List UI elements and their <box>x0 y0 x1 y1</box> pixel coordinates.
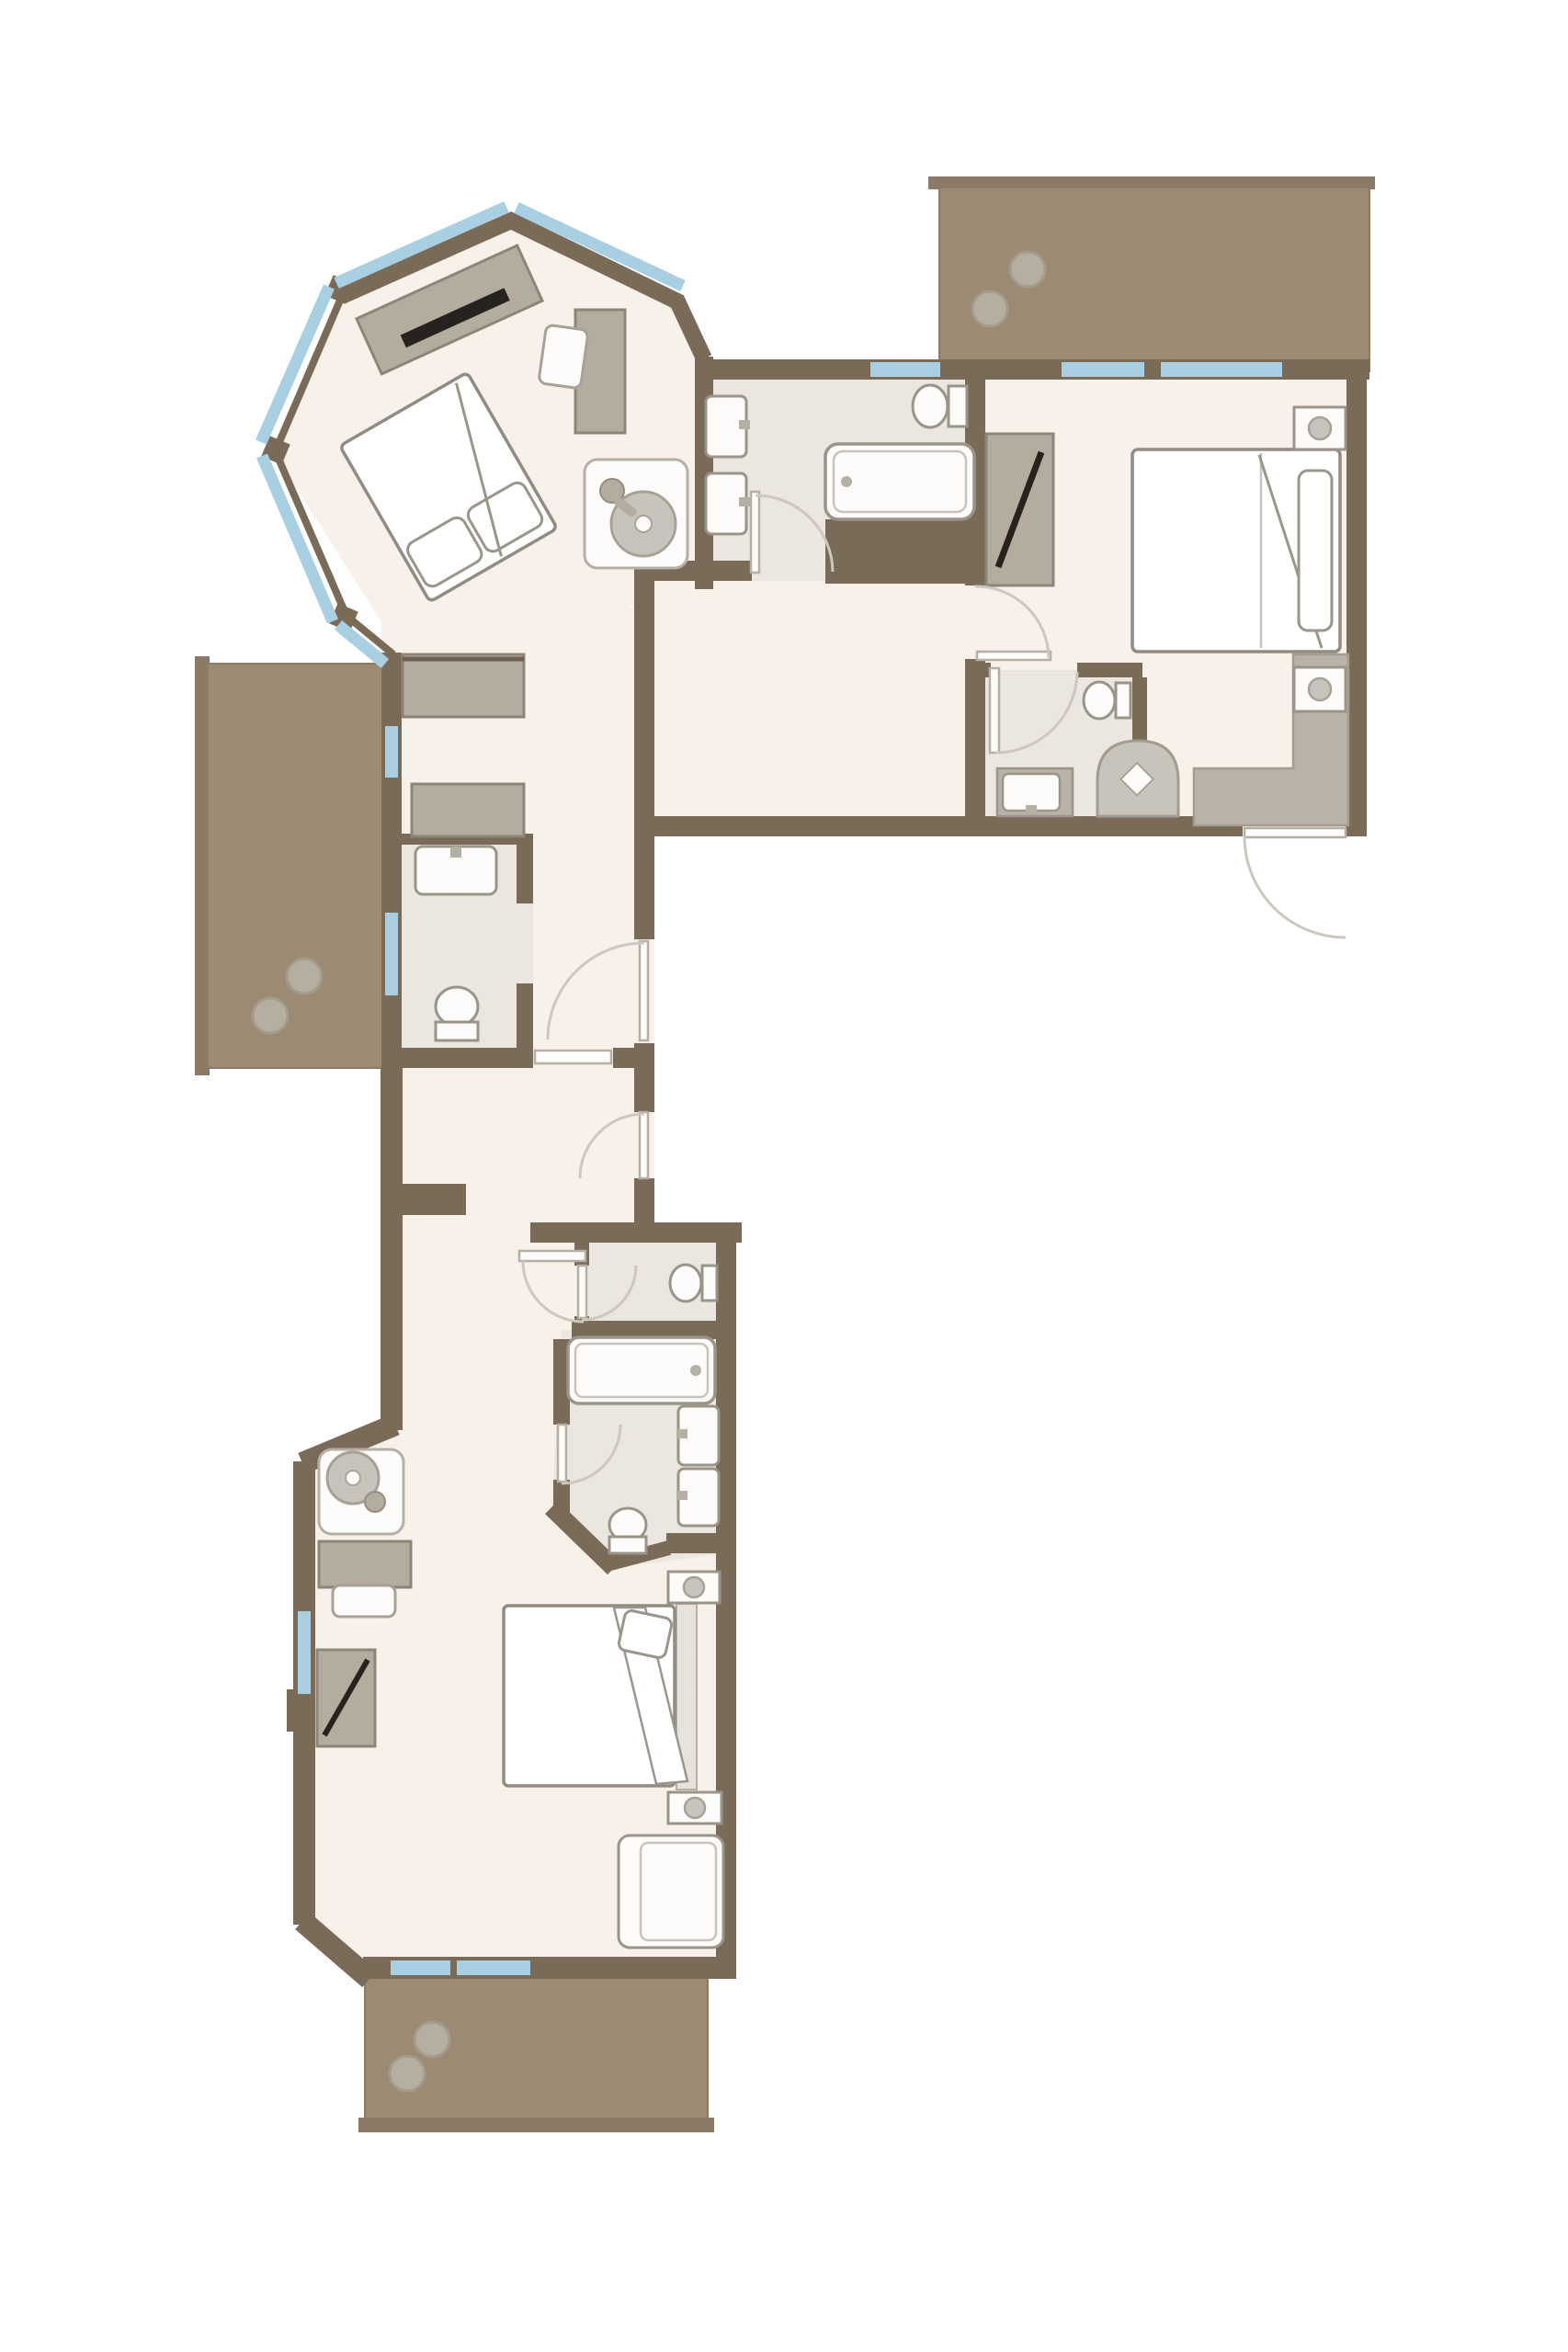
door-wc2-leaf <box>578 1266 586 1318</box>
terrace-left-chair-2 <box>253 998 288 1033</box>
terrace-top-right <box>928 176 1375 371</box>
window-bedroom2-south-2 <box>457 1960 530 1975</box>
lamp-tr-2 <box>1309 678 1331 700</box>
terrace-top-right-chair-2 <box>972 291 1007 326</box>
door-bathroom1-leaf <box>751 492 759 573</box>
terrace-left-floor <box>208 664 384 1068</box>
door-intersuite-leaf <box>535 1051 611 1063</box>
door-bedroom-tr-entry-leaf <box>1244 828 1346 837</box>
window-corridor-1 <box>385 726 398 778</box>
toilet-wc2-tank <box>702 1266 717 1301</box>
door-bedroom-tr-leaf <box>977 652 1051 660</box>
lamp-b2-1 <box>684 1577 704 1597</box>
window-bedroom-tr-1 <box>1062 362 1144 377</box>
toilet-bathroom1-bowl <box>913 385 948 427</box>
basin-bathroom1-1-faucet <box>739 420 750 429</box>
window-bedroom-tr-2 <box>1161 362 1282 377</box>
bathtub-1-faucet <box>841 476 852 487</box>
terrace-left-chair-1 <box>287 959 322 994</box>
sink-wc-tr-faucet <box>1026 805 1037 814</box>
terrace-bottom-ledge <box>358 2118 714 2132</box>
bed2-pillow <box>618 1609 673 1659</box>
hairdryer-bedroom2 <box>365 1492 385 1512</box>
terrace-top-right-floor <box>939 187 1369 371</box>
desk-bedroom2 <box>319 1541 411 1587</box>
terrace-left <box>195 656 384 1075</box>
door-wc-tr-leaf <box>990 668 999 753</box>
door-bathroom2-leaf <box>558 1425 566 1482</box>
toilet-wc-tr-tank <box>1116 683 1131 718</box>
terrace-bottom-chair-2 <box>390 2056 425 2091</box>
terrace-top-right-chair-1 <box>1010 252 1045 287</box>
terrace-bottom-chair-1 <box>415 2022 449 2057</box>
basin-wc1-faucet <box>450 846 461 858</box>
wall-bathroom1-block <box>825 519 976 584</box>
basin-bathroom2-1-faucet <box>676 1429 687 1438</box>
sink-octagon-faucet <box>635 516 652 532</box>
lamp-b2-2 <box>685 1798 705 1818</box>
window-bedroom2-west <box>298 1611 311 1694</box>
door-hall2-leaf <box>519 1251 585 1261</box>
floor-hall-upper <box>635 579 985 826</box>
wall-window-stub <box>287 1689 305 1732</box>
toilet-wc1-tank <box>436 1022 478 1040</box>
floor-plan <box>0 0 1568 2352</box>
sink-bedroom2-faucet <box>346 1471 360 1485</box>
window-corridor-2 <box>385 913 398 995</box>
toilet-wc1-bowl <box>436 987 478 1026</box>
terrace-bottom <box>358 1976 714 2132</box>
window-bathroom-1 <box>870 362 940 377</box>
wc-2 <box>670 1265 717 1301</box>
basin-bathroom1-2-faucet <box>739 497 750 506</box>
toilet-wc2-bowl <box>670 1265 701 1301</box>
sofa-bedroom2 <box>619 1835 723 1948</box>
floor-plan-page <box>0 0 1568 2352</box>
toilet-bathroom1-tank <box>949 386 967 426</box>
door-suite2-entry-leaf <box>640 1112 648 1178</box>
cupboard-corridor-2 <box>412 784 524 836</box>
floor-plan-canvas <box>0 0 1568 2352</box>
window-bedroom2-south-1 <box>391 1960 450 1975</box>
chair-octagon <box>539 324 588 389</box>
toilet-bathroom2-tank <box>609 1537 646 1553</box>
bed-tr-pillow <box>1299 471 1332 631</box>
chair-bedroom2 <box>333 1585 395 1617</box>
cupboard-corridor-1 <box>403 654 524 717</box>
basin-bathroom2-2-faucet <box>676 1491 687 1500</box>
lamp-tr-1 <box>1309 417 1331 439</box>
wall-hall2-jog <box>381 1184 466 1215</box>
door-suite1-entry-leaf <box>640 941 648 1040</box>
toilet-wc-tr-bowl <box>1084 682 1115 719</box>
bathtub-2-faucet <box>690 1365 701 1376</box>
